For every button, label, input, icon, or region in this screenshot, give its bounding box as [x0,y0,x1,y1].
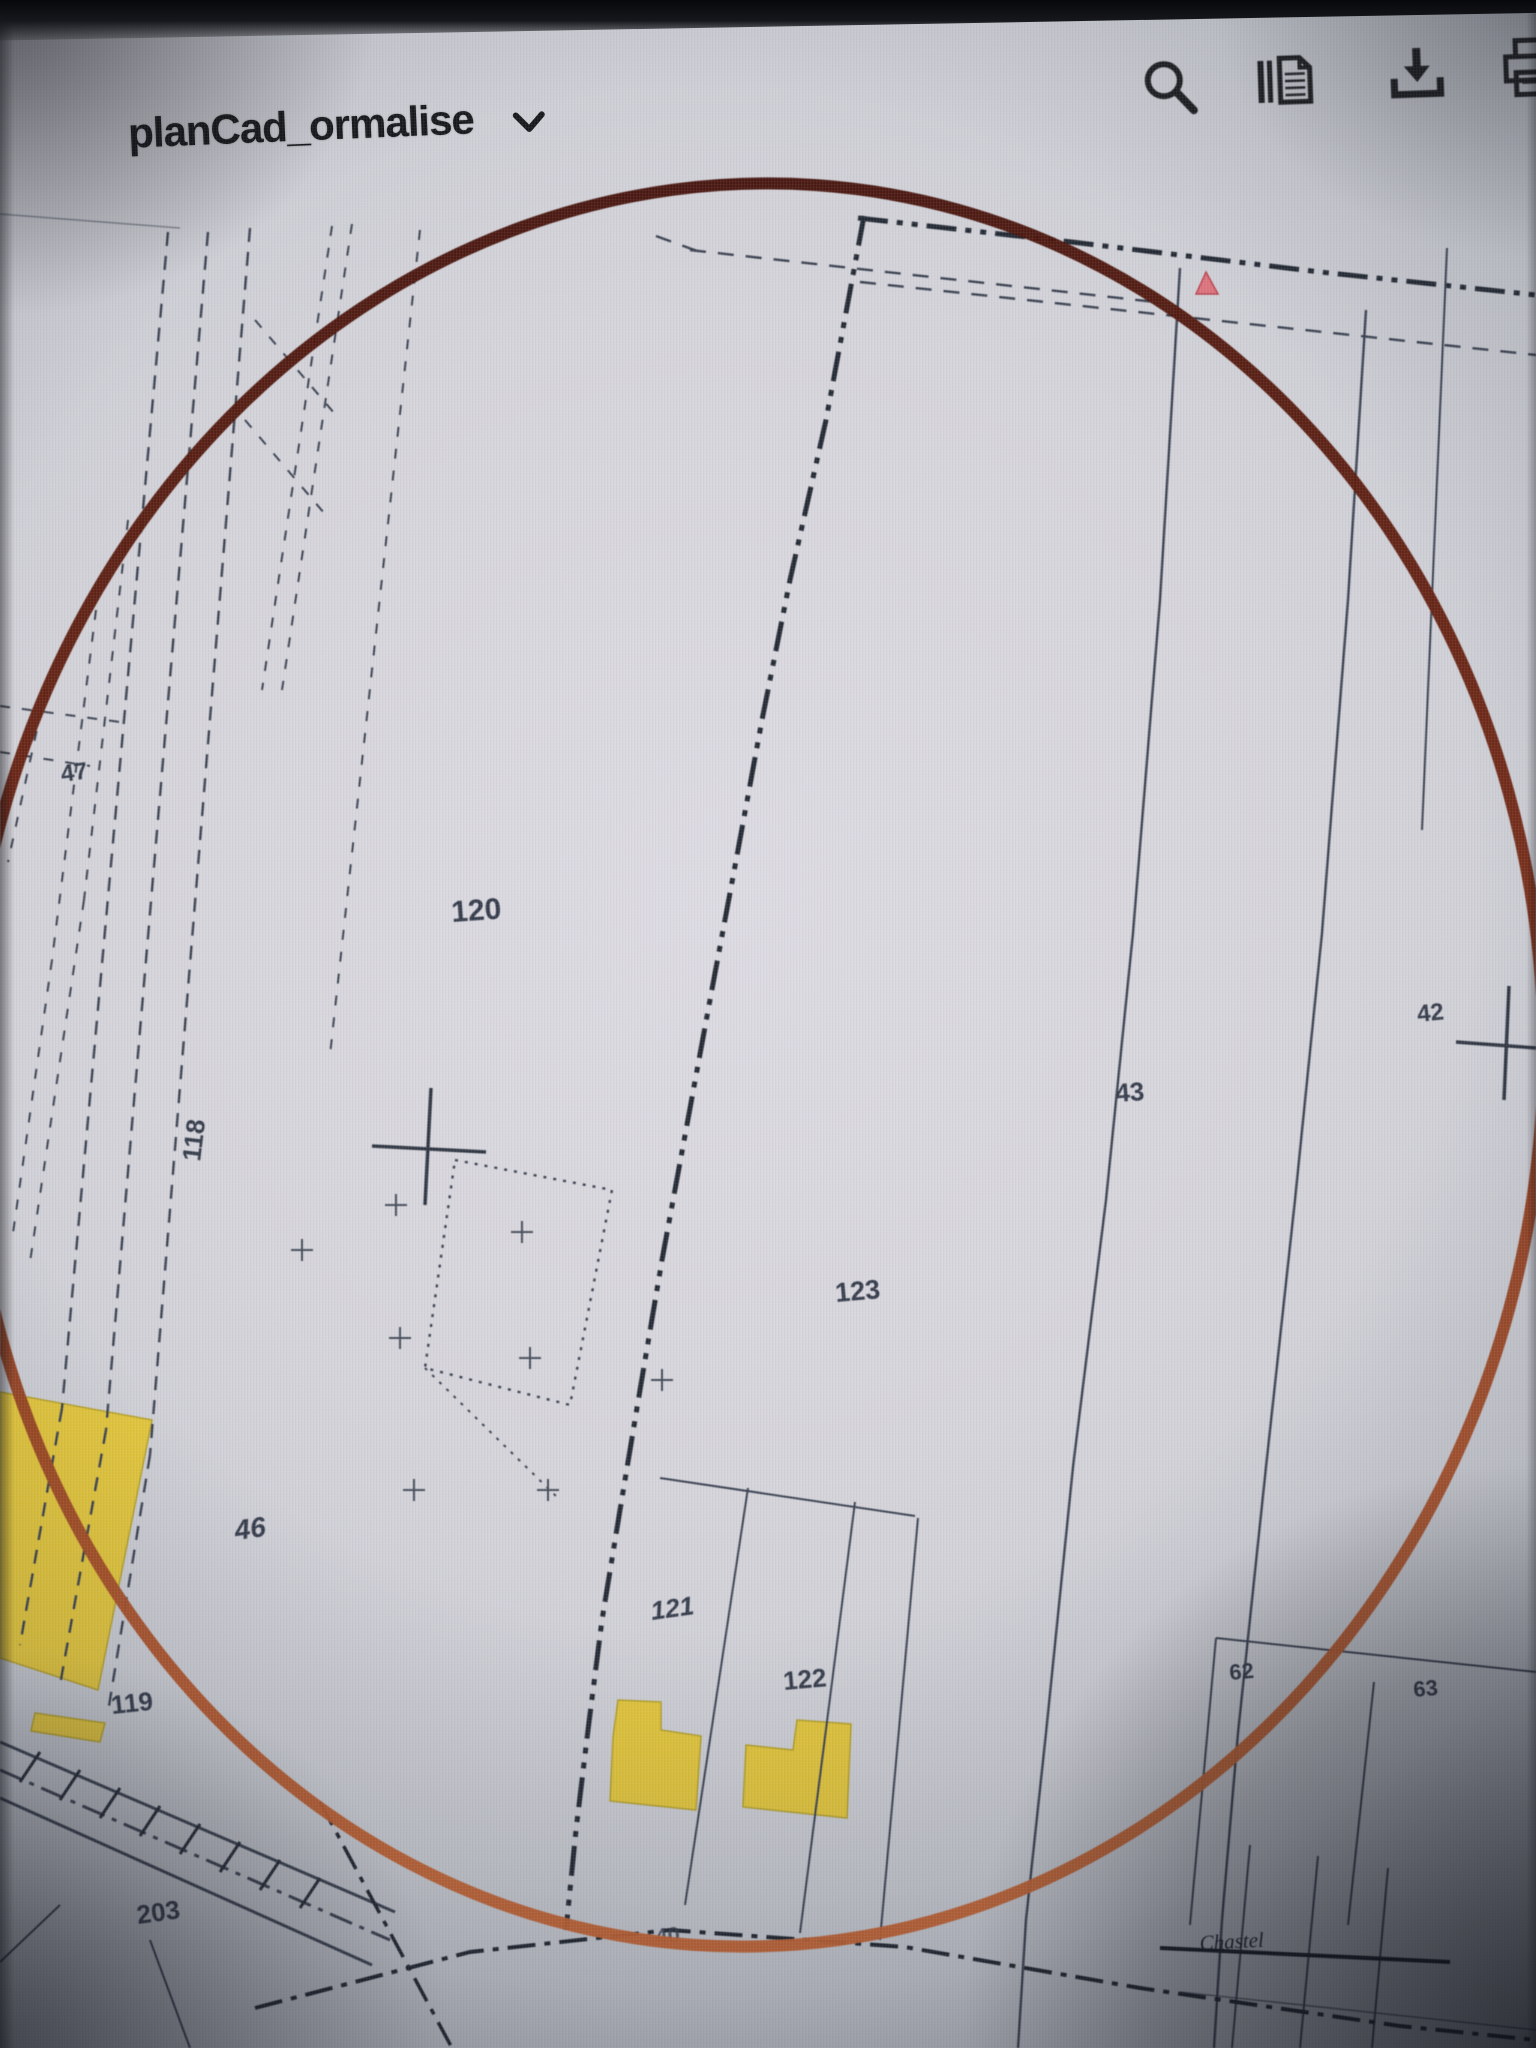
map-canvas[interactable]: 47 120 118 42 43 123 46 121 122 62 63 11… [0,0,1536,2048]
handdrawn-circle-annotation [0,130,1536,2000]
print-button[interactable] [1501,35,1536,101]
parcel-label-118: 118 [176,1117,211,1162]
search-button[interactable] [1137,53,1203,119]
parcel-label-43: 43 [1114,1076,1145,1108]
building-footprint [31,1713,105,1742]
printer-icon [1501,35,1536,101]
survey-tick-marks [291,1194,673,1501]
parcel-label-121: 121 [649,1590,696,1626]
building-footprint [0,1392,152,1690]
document-title-dropdown[interactable]: planCad_ormalise [127,89,547,160]
document-copy-icon [1255,47,1321,113]
pink-marker-icon [1196,272,1218,294]
parcel-label-123: 123 [834,1274,882,1308]
parcel-label-120: 120 [450,893,502,929]
download-button[interactable] [1385,41,1451,107]
pages-button[interactable] [1255,47,1321,113]
chevron-down-icon [511,95,547,144]
parcel-label-46: 46 [232,1511,269,1546]
parcel-label-119: 119 [109,1686,154,1720]
toolbar: planCad_ormalise [0,0,1536,210]
download-arrow-icon [1385,41,1451,107]
magnifier-icon [1137,53,1203,119]
parcel-label-62: 62 [1228,1658,1255,1685]
parcel-label-42: 42 [1416,998,1445,1028]
place-label-chastel: Chastel [1199,1928,1265,1955]
building-footprint [743,1720,851,1818]
building-footprint [610,1700,701,1810]
parcel-label-47: 47 [59,757,89,787]
document-title: planCad_ormalise [127,95,475,157]
parcel-label-203: 203 [135,1894,182,1930]
parcel-label-122: 122 [782,1662,828,1696]
survey-cross [372,986,1536,1205]
parcel-label-63: 63 [1412,1675,1439,1702]
